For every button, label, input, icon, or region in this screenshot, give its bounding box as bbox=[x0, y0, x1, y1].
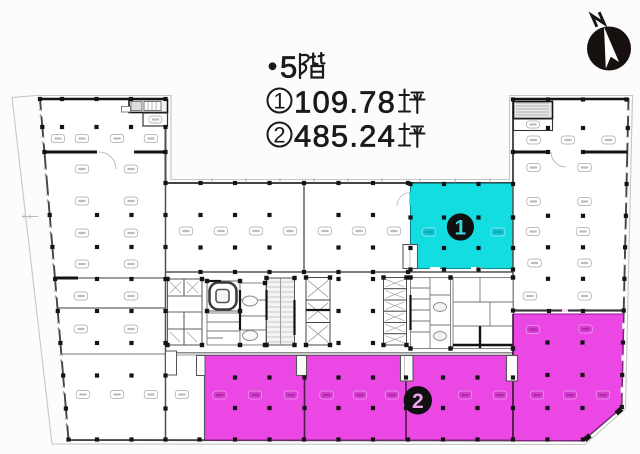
svg-text:485.24: 485.24 bbox=[294, 119, 396, 154]
svg-text:2: 2 bbox=[412, 390, 424, 413]
svg-text:2: 2 bbox=[273, 123, 285, 148]
svg-text:109.78: 109.78 bbox=[294, 85, 396, 120]
svg-text:1: 1 bbox=[273, 89, 285, 114]
svg-text:5: 5 bbox=[280, 50, 297, 85]
svg-text:1: 1 bbox=[455, 217, 467, 240]
